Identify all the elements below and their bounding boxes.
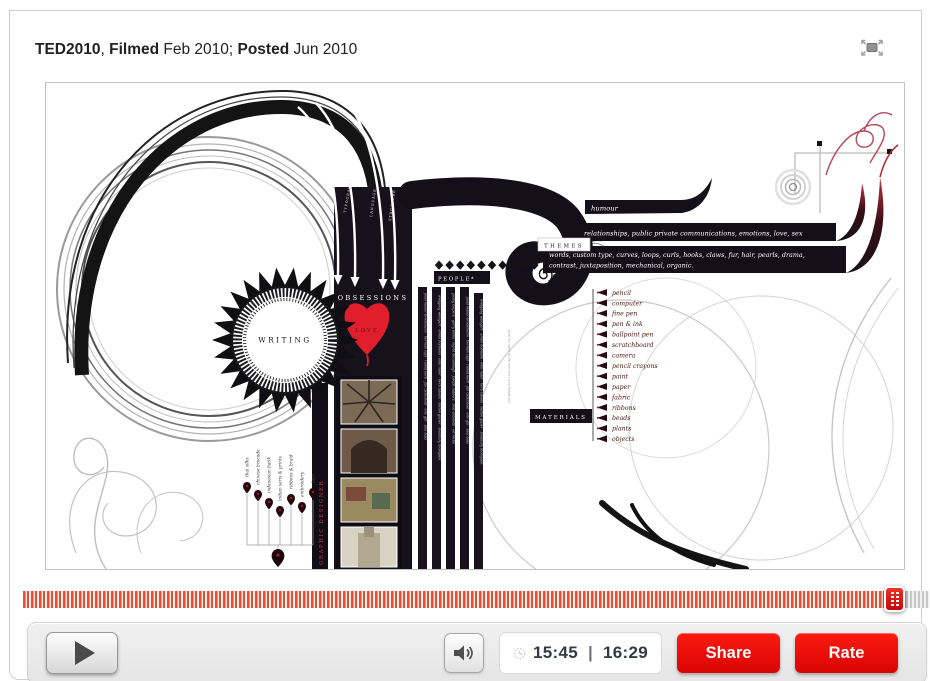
fabric-item-marker [265,498,273,509]
fabric-item-marker [254,490,262,501]
themes-bars: humour relationships, public private com… [538,145,898,273]
materials-item-label: computer [612,300,643,307]
designer-label: GRAPHIC DESIGNER [319,480,325,565]
svg-text:josef muller-brockmann · herma: josef muller-brockmann · herman zapf · r… [424,292,428,440]
topright-ornament [776,113,892,213]
share-button[interactable]: Share [677,633,780,673]
people-name-bars: josef muller-brockmann · herman zapf · r… [418,287,484,569]
time-separator: | [585,643,596,663]
fabric-item-marker [298,502,306,513]
current-time: 15:45 [533,643,578,663]
love-label: LOVE [355,328,379,334]
player-frame: TED2010, Filmed Feb 2010; Posted Jun 201… [9,10,922,680]
materials-item-label: ribbons [612,405,636,412]
materials-item-label: camera [612,353,636,360]
fabric-item-label: chinese brocade [257,449,262,485]
materials-label: MATERIALS [535,415,587,421]
materials-item-label: fabric [611,394,631,401]
words-text-1: words, custom type, curves, loops, curls… [549,251,805,259]
humour-label: humour [591,205,619,213]
filmed-date: Feb 2010; [159,41,237,58]
fullscreen-button[interactable] [859,37,885,59]
materials-item-label: scratchboard [612,342,654,349]
event-name: TED2010 [35,41,100,58]
fabric-item-marker [243,482,251,493]
thumbnail-strip [336,376,402,569]
words-text-2: contrast, juxtaposition, mechanical, org… [549,262,693,270]
volume-button[interactable] [444,633,484,673]
side-caption: everything here i love and use to make m… [507,330,511,403]
time-display: 15:45 | 16:29 [499,632,662,674]
fabric-item-label: embroidery [301,471,306,497]
materials-item-label: ballpoint pen [612,332,653,339]
play-button[interactable] [46,632,118,674]
filmed-label: Filmed [109,41,159,58]
scrubber-handle[interactable] [884,586,905,612]
materials-item-label: objects [612,436,634,443]
video-player-page: TED2010, Filmed Feb 2010; Posted Jun 201… [0,0,930,681]
total-time: 16:29 [603,643,648,663]
materials-section: pencilcomputerfine penpen & inkballpoint… [530,289,658,443]
red-script-flourish [826,113,892,175]
video-meta: TED2010, Filmed Feb 2010; Posted Jun 201… [35,41,891,67]
svg-text:young helpers · gerry blims ·: young helpers · gerry blims · ingrid mcv… [452,292,456,444]
bottom-swooshes [602,503,746,569]
writing-label: WRITING [258,336,312,345]
progress-played[interactable] [23,591,906,608]
fabric-item-marker [287,494,295,505]
materials-item-label: pen & ink [612,321,643,328]
rate-button[interactable]: Rate [795,633,898,673]
materials-item-label: pencil [612,290,631,297]
diamond-border [435,261,539,270]
themes-label: THEMES [544,244,584,250]
play-icon [75,641,95,665]
fabric-group-marker [272,549,285,567]
posted-label: Posted [237,41,289,58]
fabric-item-label: ribbons & braid [290,454,295,489]
fabric-item-label: indian saris & prints [279,455,284,501]
materials-item-label: beads [612,415,630,422]
svg-text:wolfgang weingart · armin hofm: wolfgang weingart · armin hofmann · emil… [480,299,484,465]
people-label: PEOPLE* [438,277,475,283]
relationships-text: relationships, public private communicat… [584,230,803,238]
progress-remaining[interactable] [906,591,929,608]
svg-text:josef muller-brockmann · herma: josef muller-brockmann · herman zapf · r… [466,296,470,444]
fabric-item-label: indonesian batik [268,457,273,493]
control-bar: 15:45 | 16:29 Share Rate [27,622,927,681]
fabric-item-label: thai silks [246,457,251,477]
clock-icon [513,647,526,660]
materials-item-label: fine pen [611,311,637,318]
materials-item-label: plants [612,426,631,433]
right-controls: 15:45 | 16:29 Share Rate [444,632,898,674]
materials-item-label: paper [612,384,631,391]
video-display[interactable]: CEREMONYPATTERNTYPOGRAPHYLANGUAGESTRUCTU… [45,82,905,570]
fullscreen-icon [859,37,885,59]
materials-item-label: paint [612,373,629,380]
fabric-item-marker [276,506,284,517]
fabric-item-label: lace [312,474,317,483]
obsessions-label: OBSESSIONS [338,294,409,302]
posted-date: Jun 2010 [289,41,357,58]
svg-text:wolfgang weingart · armin hofm: wolfgang weingart · armin hofmann · emil… [438,295,442,461]
video-artwork: CEREMONYPATTERNTYPOGRAPHYLANGUAGESTRUCTU… [46,83,904,569]
fabrics-section: thai silkschinese brocadeindonesian bati… [243,449,317,567]
materials-item-label: pencil crayons [612,363,658,370]
volume-icon [451,642,477,664]
scrubber-grip [891,592,899,607]
progress-bar[interactable] [23,588,929,612]
